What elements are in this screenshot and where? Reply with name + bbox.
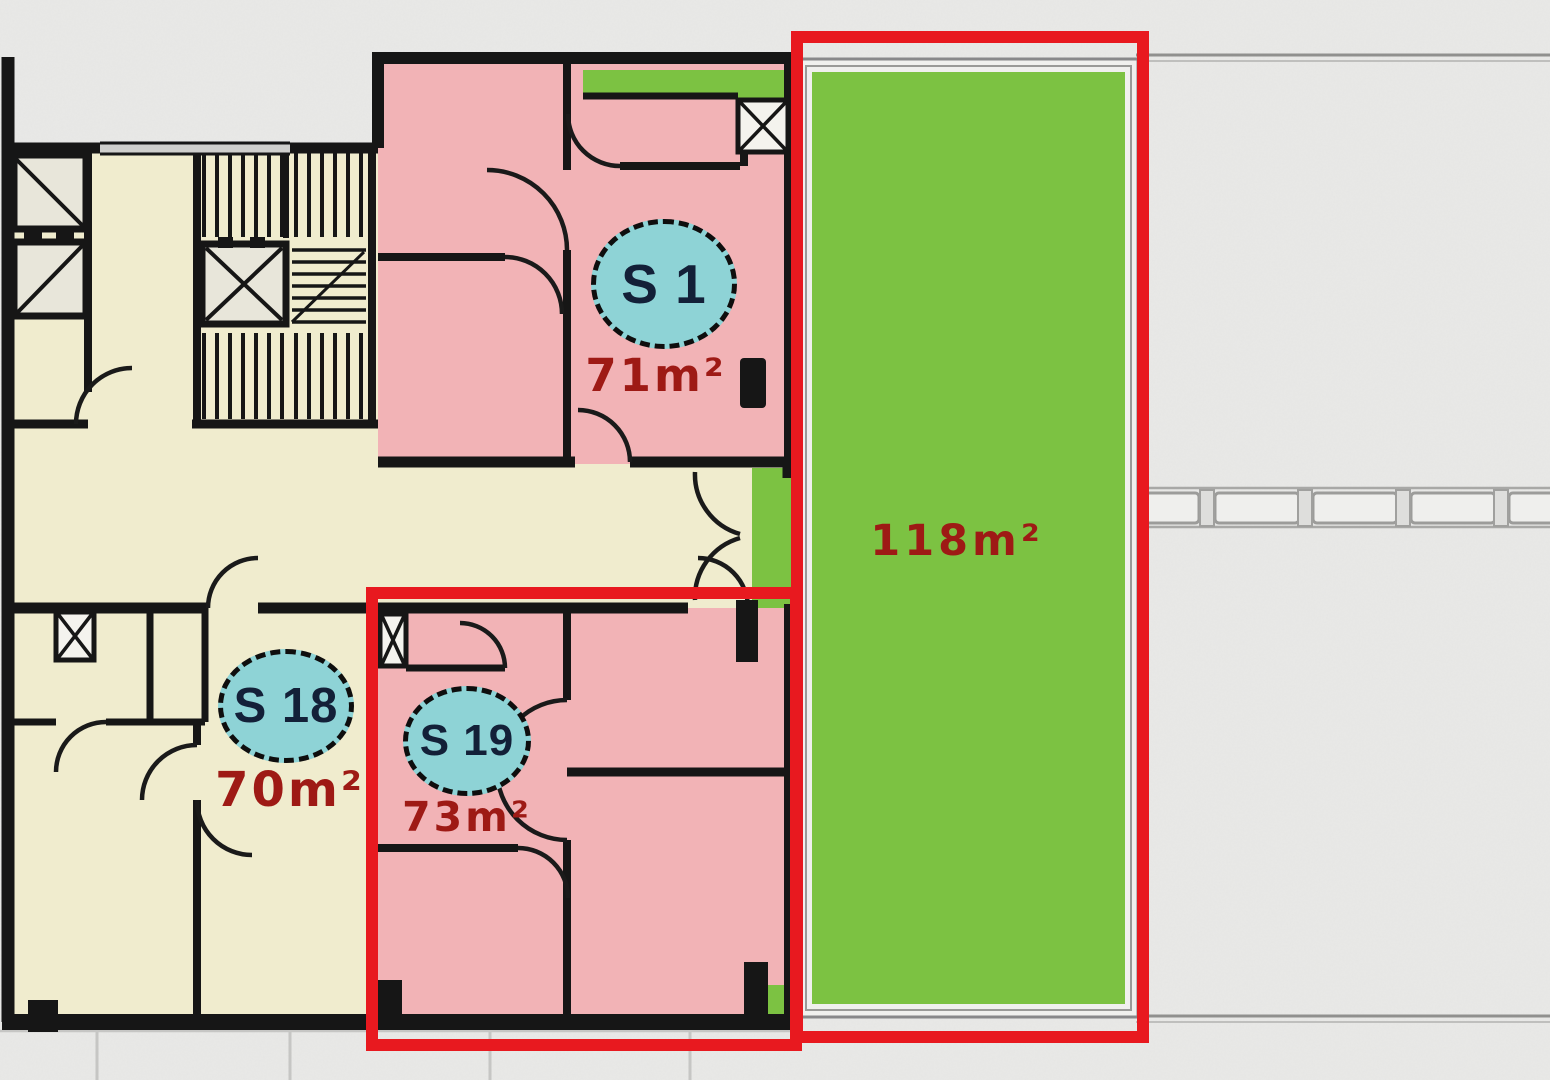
floor-plan-drawing [0, 0, 1550, 1080]
unit-badge-s19-label: S 19 [420, 716, 515, 766]
column-box-s1 [738, 100, 788, 152]
unit-badge-s1[interactable]: S 1 [591, 219, 737, 349]
terrace-area-label: 118m² [862, 516, 1052, 566]
unit-area-s19: 73m² [392, 793, 542, 841]
unit-area-s1: 71m² [566, 349, 746, 402]
unit-badge-s18[interactable]: S 18 [218, 649, 354, 763]
unit-area-s18: 70m² [205, 762, 375, 818]
column-box-s18 [56, 612, 94, 660]
column-box-s19 [380, 614, 406, 666]
unit-badge-s18-label: S 18 [234, 678, 339, 734]
floor-plan-canvas: S 1 71m² S 18 70m² S 19 73m² 118m² [0, 0, 1550, 1080]
unit-badge-s1-label: S 1 [621, 252, 707, 316]
pavement-tile-band [1143, 488, 1550, 527]
unit-badge-s19[interactable]: S 19 [403, 686, 531, 796]
